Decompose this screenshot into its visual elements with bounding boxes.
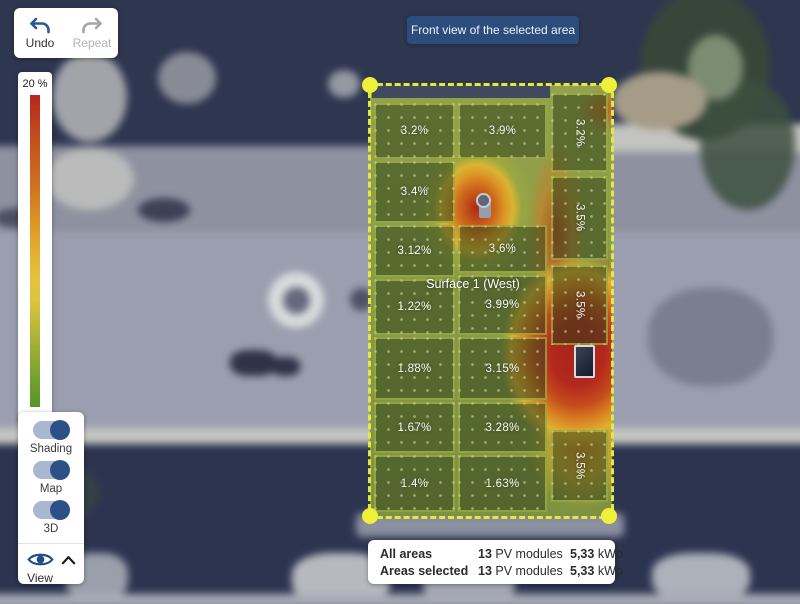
- module-shading-label: 3.15%: [485, 363, 519, 375]
- repeat-button[interactable]: Repeat: [66, 8, 118, 58]
- summary-label: All areas: [380, 547, 478, 561]
- layer-controls-panel: Shading Map 3D View: [18, 412, 84, 584]
- summary-row-all-areas: All areas 13 PV modules 5,33 kWp: [380, 547, 603, 561]
- selection-handle-top-right[interactable]: [601, 77, 617, 93]
- undo-label: Undo: [26, 36, 55, 50]
- shading-toggle-label: Shading: [30, 443, 72, 455]
- selection-handle-bottom-right[interactable]: [601, 508, 617, 524]
- module-shading-label: 1.63%: [485, 478, 519, 490]
- pv-module[interactable]: 1.4%: [374, 455, 455, 512]
- module-shading-label: 1.88%: [397, 363, 431, 375]
- undo-icon: [28, 17, 52, 34]
- toggle-knob: [50, 460, 70, 480]
- pv-module[interactable]: 3.12%: [374, 225, 455, 277]
- module-shading-label: 1.67%: [397, 422, 431, 434]
- legend-gradient-bar: [30, 95, 40, 407]
- pv-module[interactable]: 3.28%: [458, 402, 547, 453]
- pv-module[interactable]: 3.5%: [551, 430, 608, 502]
- chimney-obstacle-top: [476, 193, 491, 208]
- view-controls: View: [27, 551, 76, 585]
- toggle-knob: [50, 420, 70, 440]
- summary-power: 5,33 kWp: [570, 564, 623, 578]
- module-shading-label: 3.6%: [489, 243, 516, 255]
- view-button[interactable]: View: [27, 551, 54, 585]
- summary-power: 5,33 kWp: [570, 547, 623, 561]
- undo-repeat-toolbar: Undo Repeat: [14, 8, 118, 58]
- summary-modules: 13 PV modules: [478, 547, 570, 561]
- map-toggle[interactable]: [33, 461, 69, 479]
- module-shading-label: 3.9%: [489, 125, 516, 137]
- pv-module[interactable]: 3.6%: [458, 225, 547, 273]
- pv-module[interactable]: 1.88%: [374, 337, 455, 400]
- pv-module[interactable]: 3.5%: [551, 265, 608, 345]
- solar-planner-app: { "toolbar": { "undo_label": "Undo", "re…: [0, 0, 800, 604]
- module-shading-label: 3.99%: [485, 299, 519, 311]
- module-shading-label: 3.5%: [574, 452, 586, 479]
- pv-module[interactable]: 3.15%: [458, 337, 547, 400]
- 3d-toggle-group: 3D: [33, 501, 69, 535]
- pv-module[interactable]: 3.4%: [374, 161, 455, 223]
- repeat-icon: [80, 17, 104, 34]
- summary-label: Areas selected: [380, 564, 478, 578]
- module-shading-label: 3.2%: [401, 125, 428, 137]
- summary-row-areas-selected: Areas selected 13 PV modules 5,33 kWp: [380, 564, 603, 578]
- module-shading-label: 3.5%: [574, 204, 586, 231]
- 3d-toggle[interactable]: [33, 501, 69, 519]
- legend-max-label: 20 %: [18, 78, 52, 90]
- view-description-badge: Front view of the selected area: [407, 16, 579, 44]
- repeat-label: Repeat: [73, 36, 112, 50]
- summary-modules: 13 PV modules: [478, 564, 570, 578]
- roof-edge-shadow: [372, 85, 550, 98]
- 3d-toggle-label: 3D: [44, 523, 59, 535]
- shading-toggle-group: Shading: [30, 421, 72, 455]
- view-label: View: [27, 571, 53, 585]
- pv-module[interactable]: 3.2%: [551, 93, 608, 172]
- toggle-knob: [50, 500, 70, 520]
- selection-handle-bottom-left[interactable]: [362, 508, 378, 524]
- panel-divider: [18, 543, 84, 544]
- module-shading-label: 3.12%: [397, 245, 431, 257]
- pv-module[interactable]: 3.9%: [458, 103, 547, 159]
- roof-window-obstacle: [574, 345, 595, 378]
- pv-module[interactable]: 1.67%: [374, 402, 455, 453]
- selected-roof-area[interactable]: 3.2% 3.4% 3.12% 1.22% 1.88% 1.67% 1.4% 3…: [370, 85, 612, 517]
- pv-module[interactable]: 3.5%: [551, 176, 608, 260]
- module-shading-label: 1.22%: [397, 301, 431, 313]
- pv-summary-panel: All areas 13 PV modules 5,33 kWp Areas s…: [368, 540, 615, 584]
- undo-button[interactable]: Undo: [14, 8, 66, 58]
- module-shading-label: 3.28%: [485, 422, 519, 434]
- map-toggle-label: Map: [40, 483, 62, 495]
- module-shading-label: 3.4%: [401, 186, 428, 198]
- module-shading-label: 1.4%: [401, 478, 428, 490]
- map-toggle-group: Map: [33, 461, 69, 495]
- selection-handle-top-left[interactable]: [362, 77, 378, 93]
- pv-module[interactable]: 3.2%: [374, 103, 455, 159]
- module-shading-label: 3.5%: [574, 291, 586, 318]
- shading-toggle[interactable]: [33, 421, 69, 439]
- pv-module[interactable]: 1.63%: [458, 455, 547, 512]
- shading-scale-legend: 20 %: [18, 72, 52, 422]
- eye-icon: [27, 551, 54, 568]
- module-shading-label: 3.2%: [574, 119, 586, 146]
- surface-name-label: Surface 1 (West): [426, 277, 520, 291]
- collapse-chevron-icon[interactable]: [61, 555, 76, 565]
